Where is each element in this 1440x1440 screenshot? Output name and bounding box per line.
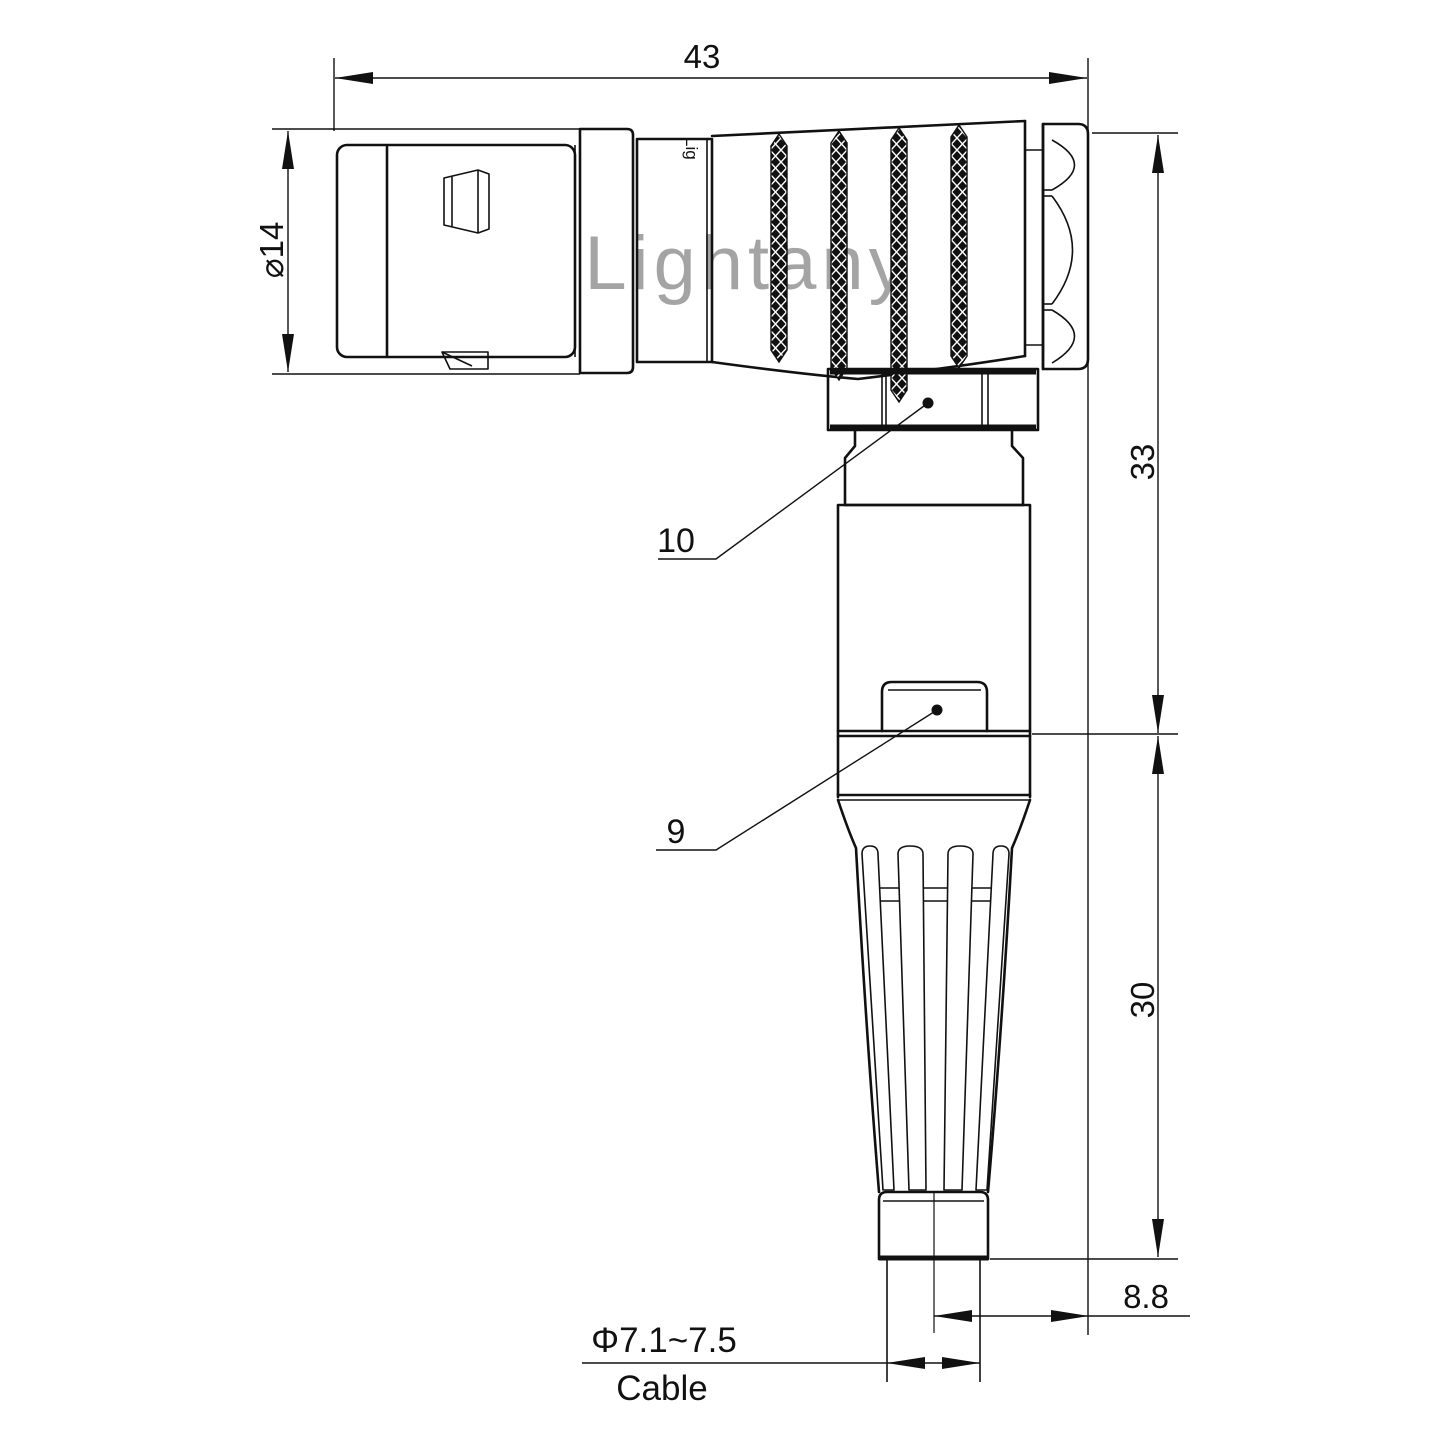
callout-coupling-nut: 10	[657, 398, 933, 561]
technical-drawing-page: Lightany Lig	[0, 0, 1440, 1440]
knurl-band	[951, 125, 967, 368]
grip-bottom-edge	[712, 356, 1025, 379]
shell-key-latch	[444, 170, 489, 233]
knurl-band	[831, 131, 847, 380]
dim-cable-offset: 8.8	[934, 1278, 1190, 1322]
dim-lower-height-text: 30	[1124, 982, 1161, 1019]
shell-bottom-key	[442, 352, 488, 369]
callout-coupling-nut-text: 10	[657, 522, 695, 560]
shell-outline	[337, 145, 575, 357]
technical-drawing: Lightany Lig	[0, 0, 1440, 1440]
dim-cable-offset-text: 8.8	[1123, 1278, 1169, 1315]
connector-top-view: Lig	[337, 121, 1088, 402]
dim-shell-diameter: ⌀14	[253, 129, 580, 374]
dim-shell-diameter-text: ⌀14	[253, 222, 290, 279]
strain-relief-rib	[944, 846, 973, 1190]
back-washer	[1025, 124, 1043, 369]
dim-cable-diameter: Φ7.1~7.5 Cable	[582, 1321, 980, 1408]
dim-cable-diameter-text: Φ7.1~7.5	[591, 1321, 737, 1360]
mating-shell	[337, 145, 575, 369]
hex-backnut	[1043, 124, 1088, 369]
strain-relief	[838, 800, 1030, 1192]
nut-washer	[845, 430, 1023, 505]
dim-overall-length-text: 43	[684, 38, 721, 75]
leg-body	[838, 505, 1030, 800]
callout-release-latch-text: 9	[667, 813, 686, 851]
grip-top-edge	[712, 121, 1025, 136]
cable-label: Cable	[616, 1369, 707, 1408]
callout-release-latch: 9	[656, 705, 943, 852]
body-marking: Lig	[682, 137, 701, 160]
dim-upper-height-text: 33	[1124, 444, 1161, 481]
dim-lower-height: 30	[990, 736, 1178, 1259]
strain-relief-left-edge	[838, 800, 879, 1192]
dim-upper-height: 33	[1032, 133, 1178, 734]
knurl-band	[771, 134, 787, 362]
strain-relief-webs	[880, 888, 991, 901]
knurl-band	[891, 128, 907, 402]
strain-relief-rib	[898, 846, 926, 1190]
connector-elbow-leg	[828, 369, 1038, 1382]
